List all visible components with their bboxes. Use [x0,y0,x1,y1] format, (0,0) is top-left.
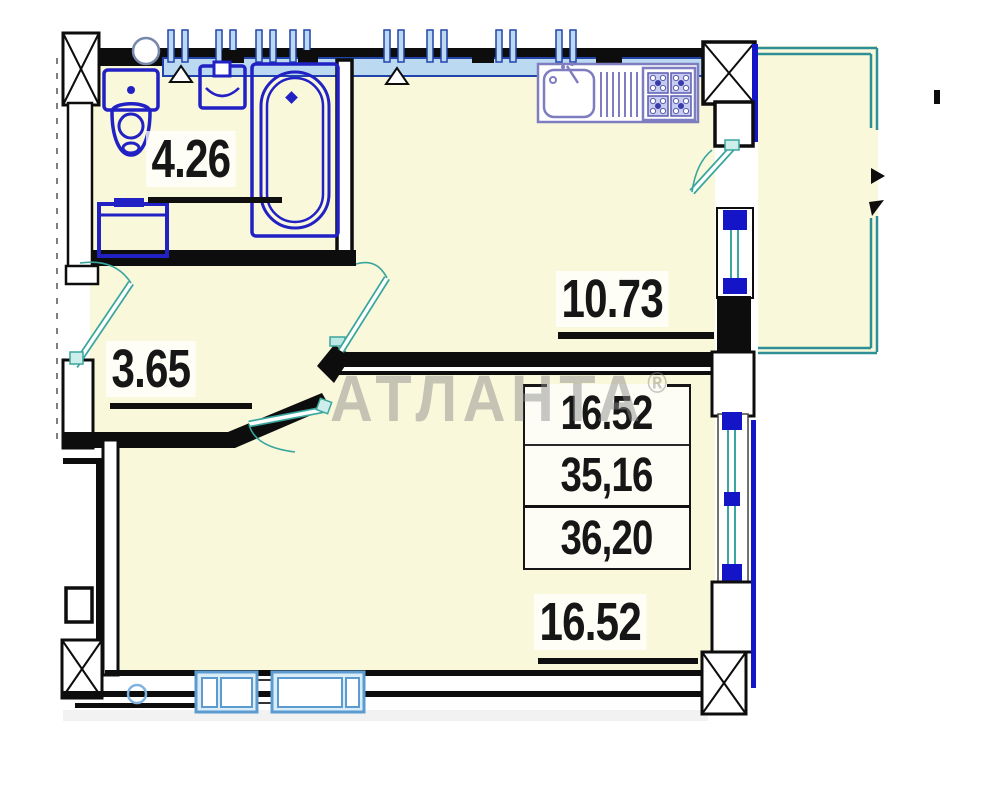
bottom-wall [63,670,709,708]
room-label-underline [558,332,714,339]
floor-plan: 4.26 10.73 3.65 16.52 16.52 35,16 36,20 … [0,0,997,800]
dish-rack [601,72,637,117]
bottom-right-column [702,652,746,714]
room-label-underline [538,658,698,664]
table-row-apartment-area: 35,16 [525,446,689,509]
living-left-wall [62,440,118,698]
left-wall [57,33,99,448]
room-label-hallway: 3.65 [106,341,196,397]
table-row-total-area: 36,20 [525,508,689,568]
kitchen-unit [538,62,698,122]
dash-mark [934,90,940,104]
room-label-bathroom: 4.26 [146,131,236,187]
room-label-living: 16.52 [534,594,646,650]
room-label-underline [110,403,252,409]
accent-line [751,420,756,688]
neighbor-fragments [869,90,940,216]
room-label-kitchen: 10.73 [556,271,668,327]
total-area-value: 36,20 [561,511,653,566]
table-corner-tick [667,384,689,387]
room-fill-balcony [758,46,878,353]
shadow-band [63,710,708,721]
vent-pipe-circle [133,38,159,64]
bottom-windows [196,672,364,712]
watermark: АТЛАНТА® [330,360,667,436]
registered-mark: ® [647,367,667,400]
shaft-box [66,588,92,622]
door-jamb [66,266,98,284]
apartment-area-value: 35,16 [561,448,653,503]
watermark-text: АТЛАНТА [330,361,645,435]
room-label-underline [148,197,282,203]
